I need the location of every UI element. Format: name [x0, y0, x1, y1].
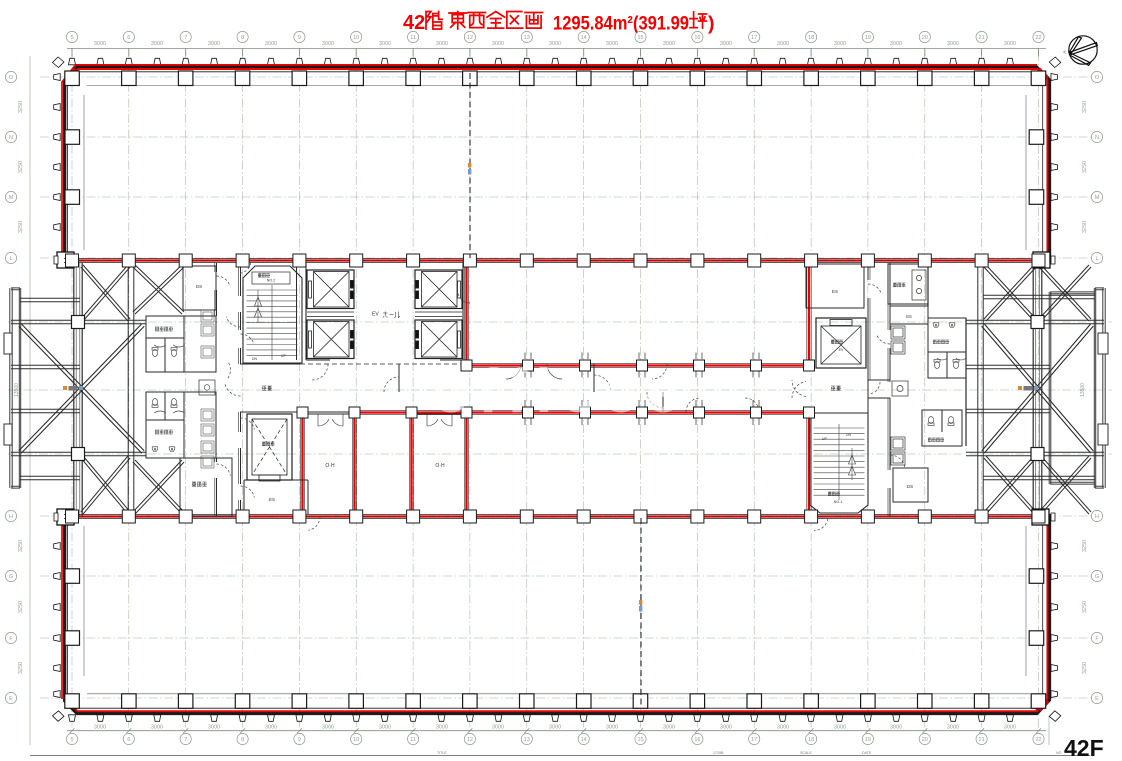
svg-text:20: 20 [922, 737, 928, 743]
svg-text:21: 21 [979, 35, 985, 41]
svg-text:3000: 3000 [549, 725, 561, 731]
svg-text:5: 5 [70, 35, 73, 41]
svg-text:13: 13 [524, 737, 530, 743]
svg-text:3000: 3000 [265, 725, 277, 731]
svg-text:1715B: 1715B [713, 751, 724, 755]
svg-text:9: 9 [298, 35, 301, 41]
svg-text:8: 8 [241, 737, 244, 743]
svg-text:3000: 3000 [492, 41, 504, 47]
svg-text:UP: UP [281, 354, 286, 358]
svg-text:NO: NO [1056, 751, 1062, 755]
svg-text:14: 14 [581, 737, 587, 743]
svg-text:6: 6 [127, 737, 130, 743]
svg-text:8: 8 [241, 35, 244, 41]
svg-text:21: 21 [979, 737, 985, 743]
svg-text:3250: 3250 [1082, 662, 1088, 674]
svg-text:3000: 3000 [94, 41, 106, 47]
svg-text:22: 22 [1035, 35, 1041, 41]
svg-text:3000: 3000 [663, 725, 675, 731]
svg-text:5: 5 [70, 737, 73, 743]
svg-text:NO.1: NO.1 [834, 500, 842, 504]
svg-text:3000: 3000 [379, 725, 391, 731]
svg-text:TITLE: TITLE [437, 751, 447, 755]
svg-text:): ) [708, 13, 715, 35]
svg-text:3000: 3000 [890, 725, 902, 731]
svg-text:E: E [9, 696, 13, 702]
svg-text:3000: 3000 [777, 41, 789, 47]
svg-text:18: 18 [808, 737, 814, 743]
svg-text:officee: officee [432, 357, 688, 426]
svg-text:3250: 3250 [1082, 540, 1088, 552]
svg-text:O·H: O·H [435, 463, 445, 469]
svg-text:17: 17 [751, 737, 757, 743]
svg-text:3250: 3250 [18, 221, 24, 233]
svg-text:22: 22 [1035, 737, 1041, 743]
svg-text:10: 10 [353, 35, 359, 41]
svg-text:3000: 3000 [606, 41, 618, 47]
svg-text:3000: 3000 [94, 725, 106, 731]
svg-text:3000: 3000 [720, 725, 732, 731]
svg-text:DATE: DATE [862, 751, 872, 755]
svg-text:10: 10 [353, 737, 359, 743]
svg-text:ES: ES [906, 314, 912, 319]
svg-text:EV: EV [372, 312, 379, 318]
svg-text:12: 12 [467, 737, 473, 743]
svg-text:3000: 3000 [720, 41, 732, 47]
svg-text:3000: 3000 [890, 41, 902, 47]
svg-text:16: 16 [694, 35, 700, 41]
svg-text:3250: 3250 [18, 601, 24, 613]
svg-text:EV: EV [839, 348, 844, 352]
svg-text:H: H [9, 514, 13, 520]
svg-text:ES: ES [832, 289, 838, 294]
svg-text:42: 42 [403, 12, 425, 34]
svg-text:14: 14 [581, 35, 587, 41]
svg-text:1295.84m²(391.99: 1295.84m²(391.99 [553, 13, 689, 35]
svg-text:6: 6 [127, 35, 130, 41]
svg-text:3000: 3000 [208, 41, 220, 47]
svg-text:13500: 13500 [1080, 383, 1086, 397]
svg-text:3250: 3250 [18, 161, 24, 173]
svg-text:20: 20 [922, 35, 928, 41]
svg-text:19: 19 [865, 737, 871, 743]
svg-text:7: 7 [184, 737, 187, 743]
svg-text:11: 11 [410, 35, 416, 41]
svg-text:3000: 3000 [322, 725, 334, 731]
svg-text:15: 15 [637, 35, 643, 41]
svg-text:3000: 3000 [777, 725, 789, 731]
svg-text:3000: 3000 [834, 725, 846, 731]
svg-text:3000: 3000 [208, 725, 220, 731]
svg-text:3250: 3250 [18, 662, 24, 674]
svg-text:3250: 3250 [18, 101, 24, 113]
svg-text:3250: 3250 [1082, 221, 1088, 233]
svg-text:42F: 42F [1064, 735, 1104, 761]
svg-text:M: M [9, 195, 14, 201]
svg-text:3000: 3000 [322, 41, 334, 47]
svg-text:DS: DS [196, 284, 202, 289]
svg-text:L: L [9, 256, 12, 262]
svg-text:M: M [1095, 195, 1100, 201]
svg-text:17: 17 [751, 35, 757, 41]
svg-text:3000: 3000 [947, 41, 959, 47]
svg-text:3000: 3000 [436, 725, 448, 731]
svg-text:19: 19 [865, 35, 871, 41]
svg-text:13: 13 [524, 35, 530, 41]
svg-text:3250: 3250 [18, 540, 24, 552]
svg-text:7: 7 [184, 35, 187, 41]
svg-text:3000: 3000 [265, 41, 277, 47]
svg-text:9: 9 [298, 737, 301, 743]
svg-text:DS: DS [907, 484, 913, 489]
svg-text:12: 12 [467, 35, 473, 41]
svg-text:3000: 3000 [151, 41, 163, 47]
svg-text:3000: 3000 [606, 725, 618, 731]
svg-text:G: G [9, 574, 13, 580]
svg-text:3000: 3000 [379, 41, 391, 47]
svg-text:3000: 3000 [436, 41, 448, 47]
svg-text:3000: 3000 [947, 725, 959, 731]
svg-text:13500: 13500 [14, 383, 20, 397]
svg-text:3000: 3000 [151, 725, 163, 731]
svg-text:3250: 3250 [1082, 101, 1088, 113]
svg-text:E: E [1095, 696, 1099, 702]
svg-text:3000: 3000 [834, 41, 846, 47]
svg-text:O: O [9, 75, 14, 81]
svg-text:3000: 3000 [663, 41, 675, 47]
svg-text:N: N [9, 135, 13, 141]
svg-text:11: 11 [410, 737, 416, 743]
svg-text:3000: 3000 [549, 41, 561, 47]
svg-text:15: 15 [637, 737, 643, 743]
svg-text:16: 16 [694, 737, 700, 743]
svg-text:O·H: O·H [325, 463, 335, 469]
svg-text:18: 18 [808, 35, 814, 41]
svg-text:3000: 3000 [1004, 725, 1016, 731]
svg-text:G: G [1095, 574, 1099, 580]
svg-text:NO.2: NO.2 [267, 279, 275, 283]
svg-text:ES: ES [269, 497, 275, 502]
svg-text:UP: UP [822, 437, 827, 441]
svg-text:DN: DN [846, 433, 851, 437]
svg-text:3250: 3250 [1082, 601, 1088, 613]
svg-text:3000: 3000 [492, 725, 504, 731]
svg-text:N: N [1095, 135, 1099, 141]
svg-text:3000: 3000 [1004, 41, 1016, 47]
svg-text:3250: 3250 [1082, 161, 1088, 173]
svg-text:SCALE: SCALE [800, 751, 812, 755]
svg-text:DN: DN [252, 357, 257, 361]
svg-text:O: O [1095, 75, 1100, 81]
svg-text:L: L [1095, 256, 1098, 262]
svg-text:H: H [1095, 514, 1099, 520]
